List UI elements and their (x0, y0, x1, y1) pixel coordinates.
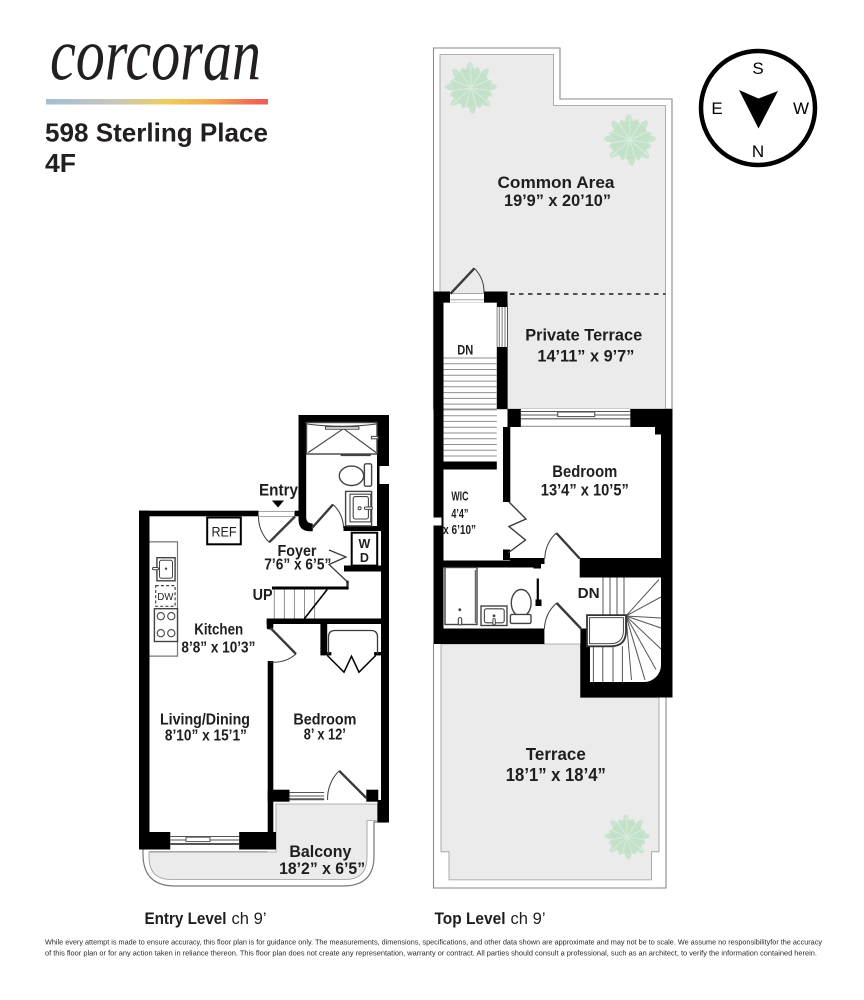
svg-text:18’1” x 18’4”: 18’1” x 18’4” (506, 765, 606, 785)
svg-text:Entry: Entry (259, 482, 299, 500)
svg-text:Common Area: Common Area (498, 174, 616, 192)
svg-text:WIC: WIC (451, 488, 468, 503)
svg-text:Top Level: Top Level (435, 910, 506, 928)
svg-text:Terrace: Terrace (526, 744, 586, 764)
svg-text:Private Terrace: Private Terrace (525, 327, 642, 345)
svg-text:REF: REF (212, 524, 237, 540)
svg-text:ch 9’: ch 9’ (511, 910, 546, 928)
svg-text:8’8” x 10’3”: 8’8” x 10’3” (181, 639, 255, 656)
svg-text:W: W (793, 99, 809, 118)
svg-text:13’4” x 10’5”: 13’4” x 10’5” (541, 482, 629, 500)
svg-text:x 6’10”: x 6’10” (443, 522, 476, 537)
svg-text:DN: DN (578, 586, 600, 602)
svg-text:ch 9’: ch 9’ (232, 910, 267, 928)
svg-text:E: E (711, 99, 722, 118)
svg-text:4F: 4F (45, 148, 76, 178)
svg-text:While every attempt is made to: While every attempt is made to ensure ac… (45, 938, 822, 947)
svg-text:Balcony: Balcony (289, 843, 352, 861)
svg-text:Entry Level: Entry Level (145, 910, 227, 928)
svg-text:corcoran: corcoran (50, 15, 261, 97)
svg-text:598 Sterling Place: 598 Sterling Place (45, 118, 268, 148)
svg-text:18’2” x 6’5”: 18’2” x 6’5” (279, 860, 365, 878)
svg-text:of this floor plan or for any: of this floor plan or for any action tak… (45, 949, 817, 958)
svg-text:DW: DW (157, 591, 173, 603)
svg-text:19’9” x 20’10”: 19’9” x 20’10” (504, 192, 611, 210)
svg-text:Bedroom: Bedroom (552, 463, 617, 481)
svg-text:S: S (752, 59, 763, 78)
svg-text:Living/Dining: Living/Dining (160, 712, 250, 729)
svg-text:7’6” x 6’5”: 7’6” x 6’5” (264, 556, 331, 573)
svg-text:14’11” x 9’7”: 14’11” x 9’7” (537, 348, 634, 366)
svg-text:D: D (360, 551, 369, 565)
svg-text:8’10” x 15’1”: 8’10” x 15’1” (165, 727, 247, 744)
svg-text:W: W (358, 537, 370, 551)
svg-text:8’ x 12’: 8’ x 12’ (304, 727, 346, 744)
svg-text:UP: UP (253, 587, 273, 604)
svg-text:Kitchen: Kitchen (194, 621, 243, 638)
svg-text:N: N (752, 142, 764, 161)
svg-text:DN: DN (457, 342, 473, 357)
svg-text:4’4”: 4’4” (451, 506, 468, 521)
